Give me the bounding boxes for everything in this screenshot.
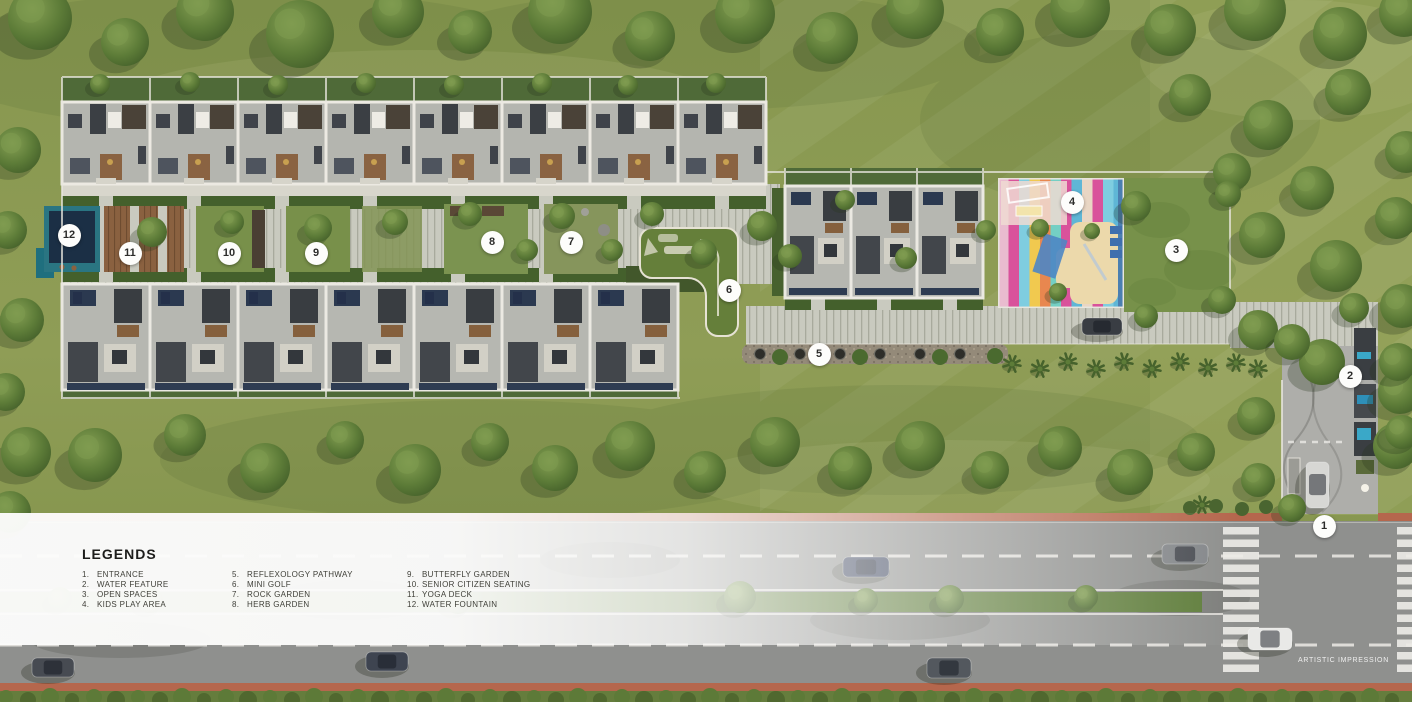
legend-item-number: 8. <box>232 600 247 610</box>
legend-item-label: WATER FOUNTAIN <box>422 600 497 609</box>
legend-item-number: 3. <box>82 590 97 600</box>
water-fountain-area <box>36 206 100 278</box>
legend-item-6: 6.MINI GOLF <box>232 580 407 590</box>
townhouse-row-bottom <box>62 284 678 390</box>
legend-column-3: 9.BUTTERFLY GARDEN10.SENIOR CITIZEN SEAT… <box>407 570 530 610</box>
legend-item-12: 12.WATER FOUNTAIN <box>407 600 530 610</box>
site-plan: LEGENDS 1.ENTRANCE2.WATER FEATURE3.OPEN … <box>0 0 1412 702</box>
legend-item-5: 5.REFLEXOLOGY PATHWAY <box>232 570 407 580</box>
townhouse-row-top <box>62 102 766 184</box>
legend-item-number: 11. <box>407 590 422 600</box>
legend-item-label: ROCK GARDEN <box>247 590 310 599</box>
legend-item-2: 2.WATER FEATURE <box>82 580 232 590</box>
legend-item-label: SENIOR CITIZEN SEATING <box>422 580 530 589</box>
legend-item-1: 1.ENTRANCE <box>82 570 232 580</box>
townhouse-block-middle <box>785 186 983 298</box>
legend-item-number: 2. <box>82 580 97 590</box>
legend-columns: 1.ENTRANCE2.WATER FEATURE3.OPEN SPACES4.… <box>82 570 530 610</box>
legend-item-label: HERB GARDEN <box>247 600 310 609</box>
legend-item-number: 9. <box>407 570 422 580</box>
legend-item-label: REFLEXOLOGY PATHWAY <box>247 570 353 579</box>
legend-item-label: OPEN SPACES <box>97 590 158 599</box>
legend-item-8: 8.HERB GARDEN <box>232 600 407 610</box>
legend-item-number: 5. <box>232 570 247 580</box>
legend-item-number: 4. <box>82 600 97 610</box>
legend-item-4: 4.KIDS PLAY AREA <box>82 600 232 610</box>
legend-item-label: ENTRANCE <box>97 570 144 579</box>
legend-item-number: 12. <box>407 600 422 610</box>
legend-item-label: KIDS PLAY AREA <box>97 600 166 609</box>
legend-item-number: 6. <box>232 580 247 590</box>
legend-title: LEGENDS <box>82 547 530 561</box>
legend-column-2: 5.REFLEXOLOGY PATHWAY6.MINI GOLF7.ROCK G… <box>232 570 407 610</box>
legend-item-label: BUTTERFLY GARDEN <box>422 570 510 579</box>
legend-item-number: 7. <box>232 590 247 600</box>
legend-item-label: WATER FEATURE <box>97 580 169 589</box>
legend-item-11: 11.YOGA DECK <box>407 590 530 600</box>
legend-item-10: 10.SENIOR CITIZEN SEATING <box>407 580 530 590</box>
artistic-impression-label: ARTISTIC IMPRESSION <box>1298 657 1389 664</box>
legend-column-1: 1.ENTRANCE2.WATER FEATURE3.OPEN SPACES4.… <box>82 570 232 610</box>
legend-item-number: 1. <box>82 570 97 580</box>
legend-item-number: 10. <box>407 580 422 590</box>
legend: LEGENDS 1.ENTRANCE2.WATER FEATURE3.OPEN … <box>82 547 530 610</box>
legend-item-3: 3.OPEN SPACES <box>82 590 232 600</box>
legend-item-label: MINI GOLF <box>247 580 291 589</box>
legend-panel: LEGENDS 1.ENTRANCE2.WATER FEATURE3.OPEN … <box>0 513 1250 645</box>
legend-item-9: 9.BUTTERFLY GARDEN <box>407 570 530 580</box>
legend-item-label: YOGA DECK <box>422 590 472 599</box>
legend-item-7: 7.ROCK GARDEN <box>232 590 407 600</box>
